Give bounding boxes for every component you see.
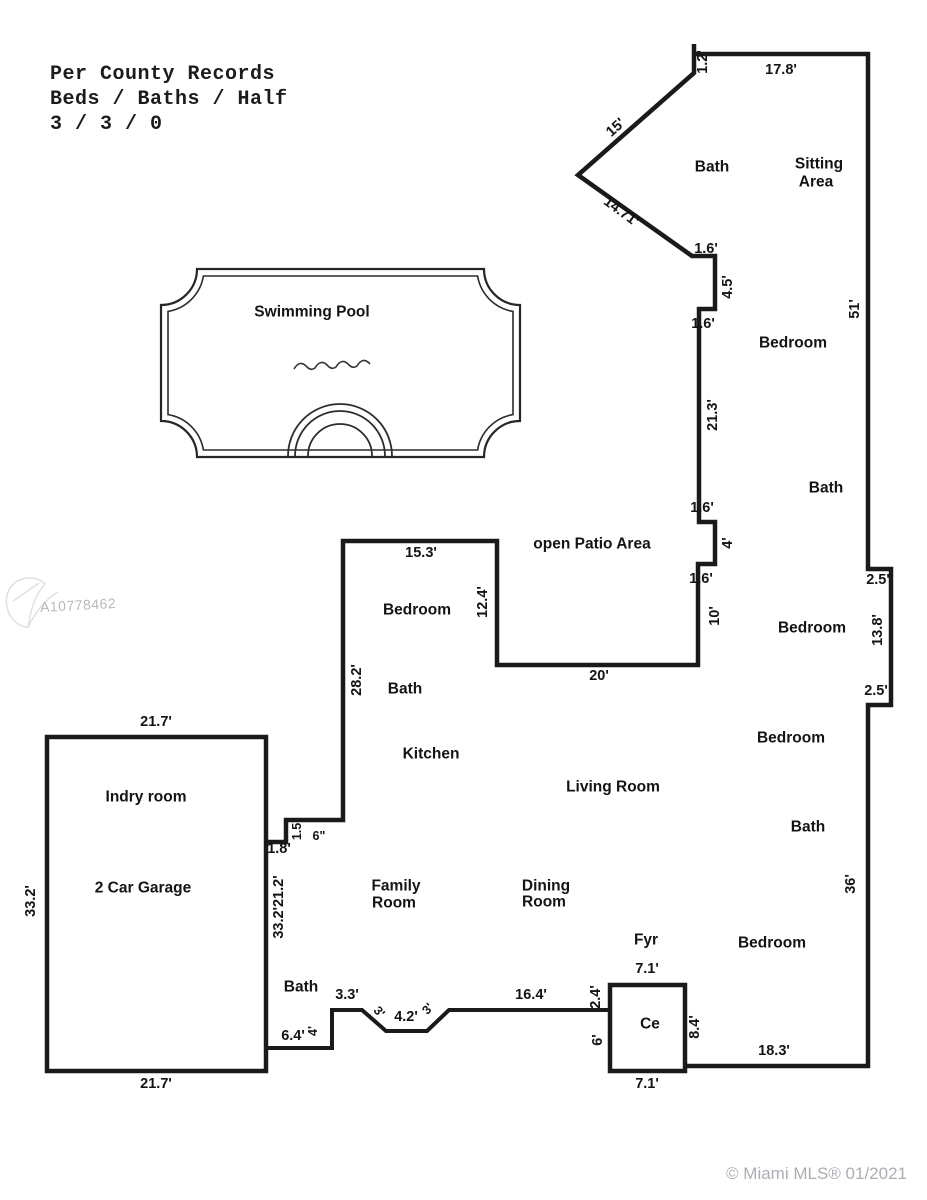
dim-3-3: 3.3' — [335, 988, 359, 1003]
dim-6: 6' — [591, 1034, 606, 1046]
dim-18-3: 18.3' — [758, 1044, 790, 1059]
dim-10: 10' — [708, 606, 723, 626]
dim-1-6-c: 1.6' — [690, 501, 714, 516]
dim-21-7-bottom: 21.7' — [140, 1077, 172, 1092]
wall-garage — [47, 737, 266, 1071]
dim-6-4: 6.4' — [281, 1029, 305, 1044]
dim-7-1-top: 7.1' — [635, 962, 659, 977]
room-label-laundry: Indry room — [106, 789, 187, 805]
dim-28-2: 28.2' — [350, 664, 365, 696]
dim-21-7-top: 21.7' — [140, 715, 172, 730]
dim-2-5-a: 2.5' — [866, 573, 890, 588]
dim-8-4: 8.4' — [688, 1015, 703, 1039]
pool-steps-icon — [288, 404, 392, 456]
room-label-foyer: Fyr — [634, 932, 658, 948]
dim-1-5: 1.5' — [291, 820, 304, 840]
title-line-2: Beds / Baths / Half — [50, 87, 288, 112]
dim-4-2: 4.2' — [394, 1010, 418, 1025]
dim-1-6-b: 1.6' — [691, 317, 715, 332]
dim-4-b: 4' — [307, 1026, 320, 1036]
dim-12-4: 12.4' — [476, 586, 491, 618]
room-label-bedroom-patio-wing: Bedroom — [383, 602, 451, 618]
title-block: Per County Records Beds / Baths / Half 3… — [50, 62, 288, 137]
room-label-bath-top: Bath — [695, 159, 729, 175]
room-label-sitting-area-1: Sitting — [795, 156, 843, 172]
room-label-family-room-1: Family — [371, 878, 420, 894]
dim-13-8: 13.8' — [871, 614, 886, 646]
room-label-living-room: Living Room — [566, 779, 660, 795]
room-label-bath-patio-wing: Bath — [388, 681, 422, 697]
room-label-swimming-pool: Swimming Pool — [254, 304, 369, 320]
room-label-dining-room-2: Room — [522, 894, 566, 910]
dim-21-3: 21.3' — [706, 399, 721, 431]
dim-6-in: 6" — [313, 830, 326, 843]
dim-4-a: 4' — [721, 537, 736, 549]
dim-33-2-21-2: 33.2'21.2' — [272, 875, 287, 938]
title-line-1: Per County Records — [50, 62, 288, 87]
room-label-bedroom-upper-right: Bedroom — [759, 335, 827, 351]
room-label-bath-upper-right: Bath — [809, 480, 843, 496]
dim-36: 36' — [844, 874, 859, 894]
floor-plan-page: Per County Records Beds / Baths / Half 3… — [0, 0, 927, 1200]
room-label-bath-lower-right: Bath — [791, 819, 825, 835]
dim-1-2: 1.2' — [696, 50, 711, 74]
dim-1-6-a: 1.6' — [694, 242, 718, 257]
title-line-3: 3 / 3 / 0 — [50, 112, 288, 137]
pool-water-icon — [294, 360, 370, 369]
room-label-garage: 2 Car Garage — [95, 880, 192, 896]
room-label-closet: Ce — [640, 1016, 660, 1032]
room-label-bedroom-center-right: Bedroom — [757, 730, 825, 746]
dim-15-3: 15.3' — [405, 546, 437, 561]
floor-plan-drawing — [0, 0, 927, 1200]
dim-1-8: 1.8' — [267, 842, 291, 857]
dim-33-2: 33.2' — [24, 885, 39, 917]
dim-2-5-b: 2.5' — [864, 684, 888, 699]
dim-2-4: 2.4' — [589, 985, 604, 1009]
room-label-dining-room-1: Dining — [522, 878, 570, 894]
room-label-sitting-area-2: Area — [799, 174, 833, 190]
room-label-bath-bottom: Bath — [284, 979, 318, 995]
room-label-kitchen: Kitchen — [403, 746, 460, 762]
dim-17-8: 17.8' — [765, 63, 797, 78]
wall-outline-main — [266, 44, 715, 842]
dim-7-1-bottom: 7.1' — [635, 1077, 659, 1092]
room-label-bedroom-bottom-right: Bedroom — [738, 935, 806, 951]
dim-4-5: 4.5' — [721, 275, 736, 299]
copyright-text: © Miami MLS® 01/2021 — [507, 1164, 907, 1184]
room-label-bedroom-mid-right: Bedroom — [778, 620, 846, 636]
room-label-open-patio: open Patio Area — [533, 536, 650, 552]
dim-1-6-d: 1.6' — [689, 572, 713, 587]
dim-20: 20' — [589, 669, 609, 684]
room-label-family-room-2: Room — [372, 895, 416, 911]
dim-51: 51' — [848, 299, 863, 319]
dim-16-4: 16.4' — [515, 988, 547, 1003]
